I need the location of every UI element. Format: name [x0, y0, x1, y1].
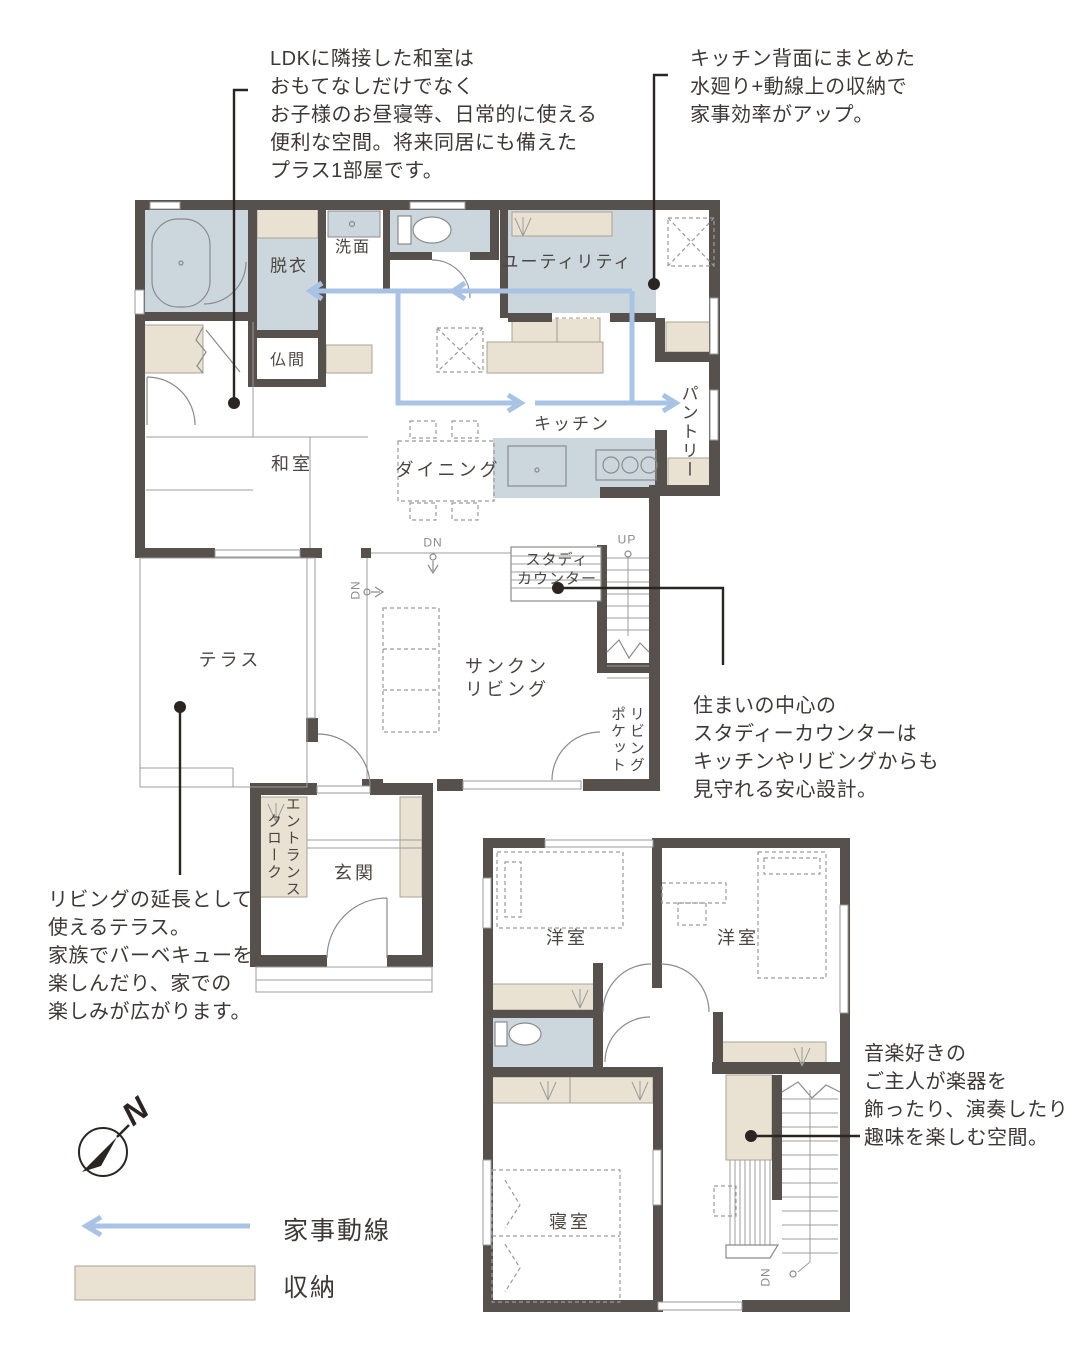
- note-terrace: リビングの延長として 使えるテラス。 家族でバーベキューを 楽しんだり、家での …: [48, 886, 253, 1026]
- stair-mark-dn-top: DN: [423, 536, 442, 551]
- porch-steps: [256, 967, 432, 992]
- flow-legend-label: 家事動線: [283, 1211, 391, 1247]
- compass-icon: [79, 1125, 129, 1176]
- sofa: [383, 608, 439, 732]
- storage-legend-label: 収納: [283, 1268, 337, 1304]
- room-label-terrace: テラス: [199, 649, 262, 672]
- stair-mark-dn-left: DN: [349, 580, 364, 599]
- room-label-utility: ユーティリティ: [502, 251, 633, 272]
- note-mizumawari: キッチン背面にまとめた 水廻り+動線上の収納で 家事効率がアップ。: [690, 45, 916, 129]
- instrument-display: [714, 1160, 778, 1258]
- room-label-living-pocket: リビング ポケット: [607, 706, 645, 774]
- room-label-butsuma: 仏間: [270, 351, 306, 371]
- room-label-study-counter: スタディ カウンター: [517, 551, 597, 589]
- washitsu-door-arc: [147, 377, 195, 425]
- room-label-senmen: 洗面: [335, 238, 371, 258]
- room-label-datsui: 脱衣: [270, 255, 308, 276]
- room-label-washitsu: 和室: [271, 453, 313, 476]
- walls-2f: [483, 838, 850, 1312]
- storage-legend-swatch: [75, 1266, 255, 1300]
- stairs-1f: [607, 551, 649, 678]
- pocket-door-arc: [552, 732, 600, 780]
- chest-right-room: [662, 883, 726, 925]
- toilet-2f: [495, 1022, 541, 1046]
- room-label-sunken-living: サンクン リビング: [465, 656, 549, 701]
- terrace-outline: [140, 558, 307, 787]
- double-bed-bedroom: [492, 1170, 620, 1302]
- stair-mark-up: UP: [618, 533, 637, 548]
- room-label-yoshitsu-left: 洋室: [546, 927, 588, 950]
- bed-right-room: [758, 852, 826, 978]
- terrace-door-arc: [318, 734, 370, 786]
- room-label-yoshitsu-right: 洋室: [717, 927, 759, 950]
- room-label-shinshitsu: 寝室: [549, 1211, 591, 1234]
- dn-arrow-top: [428, 554, 438, 573]
- note-washitsu: LDKに隣接した和室は おもてなしだけでなく お子様のお昼寝等、日常的に使える …: [270, 45, 597, 185]
- entrance-door-arc: [327, 898, 387, 958]
- stair-mark-dn-2f: DN: [759, 1267, 774, 1286]
- room-label-entrance-cloak: エントランス クローク: [263, 796, 301, 898]
- note-music: 音楽好きの ご主人が楽器を 飾ったり、演奏したり 趣味を楽しむ空間。: [864, 1040, 1068, 1152]
- room-label-dining: ダイニング: [396, 459, 501, 482]
- flow-legend-arrow: [86, 1217, 250, 1235]
- bed-left-room: [497, 852, 623, 928]
- room-label-kitchen: キッチン: [534, 413, 610, 434]
- toilet-1f: [398, 216, 451, 244]
- floor-plan-page: LDKに隣接した和室は おもてなしだけでなく お子様のお昼寝等、日常的に使える …: [0, 0, 1080, 1350]
- room-label-genkan: 玄関: [334, 862, 376, 885]
- room-label-pantry: パントリー: [677, 385, 698, 480]
- note-study: 住まいの中心の スタディーカウンターは キッチンやリビングからも 見守れる安心設…: [693, 692, 939, 804]
- stairs-2f: [782, 1082, 840, 1277]
